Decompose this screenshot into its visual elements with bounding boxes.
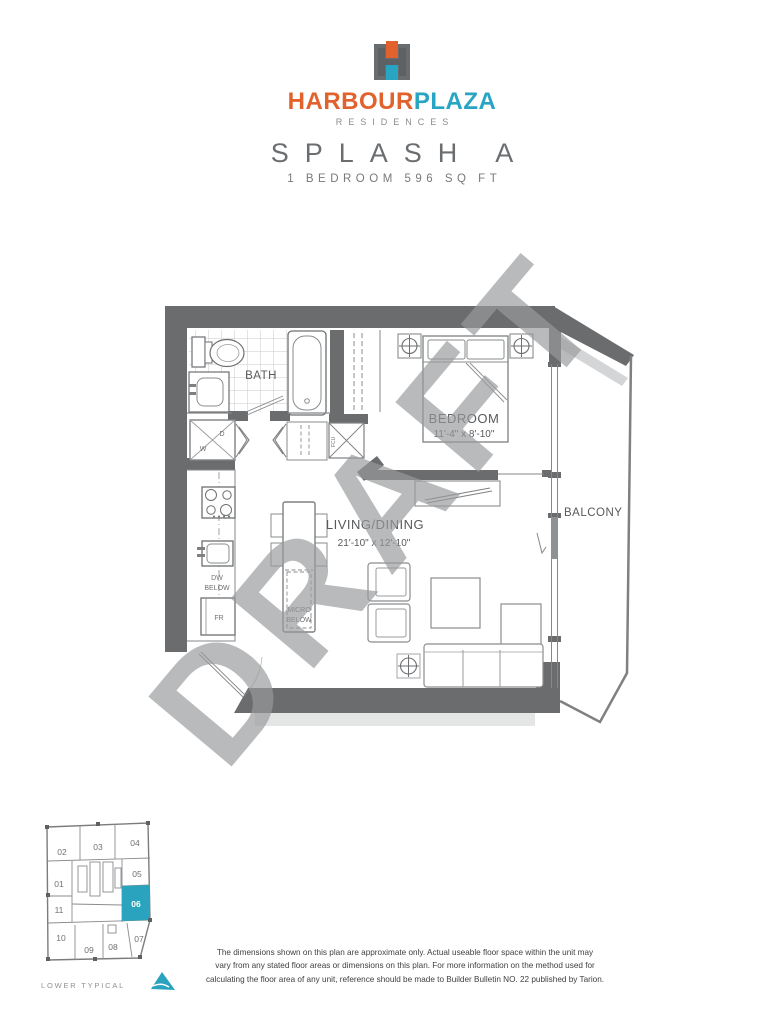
disclaimer-line-1: The dimensions shown on this plan are ap… bbox=[10, 946, 784, 959]
keyplan-unit-07: 07 bbox=[134, 934, 144, 944]
washer-dryer-closet bbox=[190, 420, 235, 460]
balcony-label: BALCONY bbox=[564, 507, 622, 519]
washer-label: W bbox=[200, 446, 207, 453]
coffee-table bbox=[431, 578, 480, 628]
floor-plan-drawing: BATH BEDROOM 11'-4" x 8'-10" LIVING/DINI… bbox=[0, 0, 784, 1024]
bifold-closet-doors bbox=[236, 424, 286, 457]
bath-label: BATH bbox=[245, 370, 277, 382]
bath-vanity bbox=[189, 372, 229, 412]
disclaimer-line-2: vary from any stated floor areas or dime… bbox=[10, 959, 784, 972]
balcony-door-swing-arrow bbox=[537, 533, 546, 553]
kitchen-cooktop bbox=[202, 487, 235, 518]
keyplan-unit-01: 01 bbox=[54, 879, 64, 889]
balcony-sliding-door bbox=[551, 517, 558, 559]
keyplan-unit-05: 05 bbox=[132, 869, 142, 879]
keyplan-unit-11: 11 bbox=[55, 905, 64, 915]
toilet bbox=[192, 337, 244, 367]
disclaimer-line-3: calculating the floor area of any unit, … bbox=[10, 973, 784, 986]
keyplan-unit-04: 04 bbox=[130, 838, 140, 848]
keyplan-unit-10: 10 bbox=[56, 933, 66, 943]
keyplan-unit-03: 03 bbox=[93, 842, 103, 852]
bathtub bbox=[288, 331, 326, 415]
keyplan-unit-06: 06 bbox=[131, 899, 141, 909]
keyplan-unit-02: 02 bbox=[57, 847, 67, 857]
disclaimer: The dimensions shown on this plan are ap… bbox=[10, 946, 784, 986]
floor-lamp-icon bbox=[397, 654, 420, 678]
floor-plan-page: HARBOURPLAZA RESIDENCES SPLASH A 1 BEDRO… bbox=[0, 0, 784, 1024]
dryer-label: D bbox=[219, 431, 224, 438]
key-plan: 01 02 03 04 05 06 07 08 09 10 11 bbox=[45, 821, 152, 961]
keyplan-caption: LOWER TYPICAL bbox=[41, 981, 125, 990]
